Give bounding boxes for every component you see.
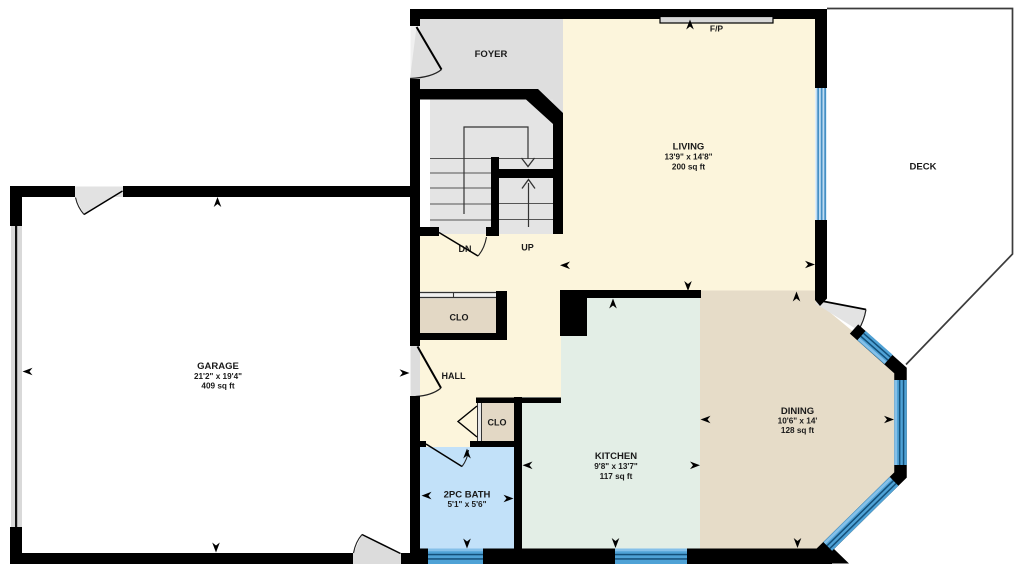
svg-text:HALL: HALL	[442, 371, 466, 381]
svg-text:200 sq ft: 200 sq ft	[672, 163, 705, 172]
svg-text:DECK: DECK	[910, 162, 937, 173]
svg-text:FOYER: FOYER	[475, 49, 508, 60]
svg-text:KITCHEN: KITCHEN	[595, 451, 637, 462]
svg-text:21'2" x 19'4": 21'2" x 19'4"	[194, 372, 242, 381]
svg-text:F/P: F/P	[710, 24, 724, 34]
svg-text:GARAGE: GARAGE	[197, 361, 239, 372]
svg-text:9'8" x 13'7": 9'8" x 13'7"	[594, 462, 638, 471]
svg-text:UP: UP	[521, 243, 534, 253]
svg-text:CLO: CLO	[488, 418, 507, 428]
svg-text:10'6" x 14': 10'6" x 14'	[778, 416, 818, 425]
svg-text:LIVING: LIVING	[673, 142, 705, 153]
svg-text:128 sq ft: 128 sq ft	[781, 426, 814, 435]
svg-text:13'9" x 14'8": 13'9" x 14'8"	[664, 153, 712, 162]
svg-text:5'1" x 5'6": 5'1" x 5'6"	[448, 500, 487, 509]
svg-text:DINING: DINING	[781, 406, 814, 417]
svg-text:409 sq ft: 409 sq ft	[201, 382, 234, 391]
svg-text:117 sq ft: 117 sq ft	[600, 472, 633, 481]
svg-text:CLO: CLO	[450, 313, 469, 323]
